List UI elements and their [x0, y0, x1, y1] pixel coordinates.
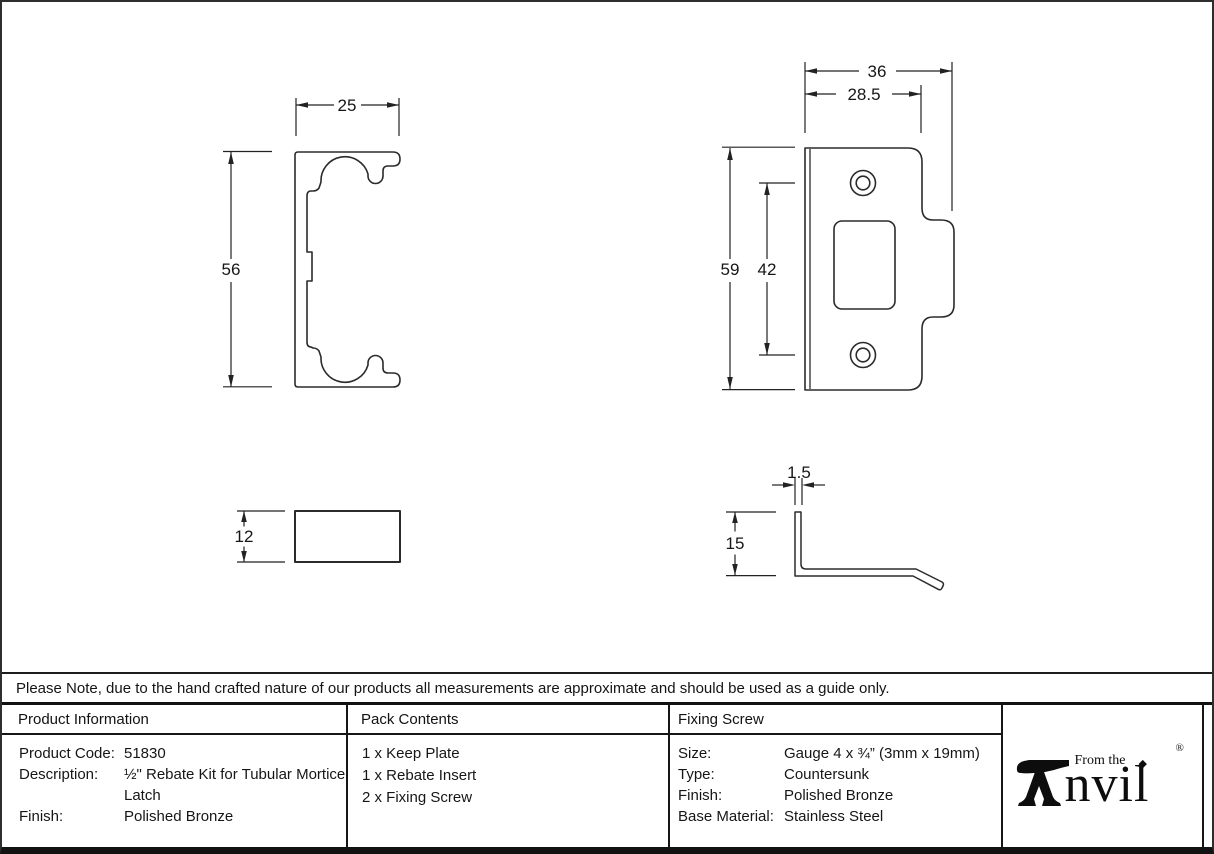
- column-header-fixing-screw: Fixing Screw: [678, 711, 764, 728]
- keep-plate-side-view: 1.5 15: [726, 463, 944, 590]
- rebate-insert-front-view: 25 56: [222, 96, 400, 387]
- screw-type-value: Countersunk: [784, 764, 869, 785]
- dim-label-keep-overall-width: 36: [868, 62, 887, 81]
- screw-material-value: Stainless Steel: [784, 806, 883, 827]
- keep-plate-front-view: 36 28.5 59: [721, 62, 954, 390]
- logo-wordmark-text: nvil: [1065, 759, 1150, 811]
- dim-keep-side-thickness: 1.5: [772, 463, 825, 505]
- dim-rebate-side-height: 12: [235, 511, 285, 562]
- dim-label-rebate-width: 25: [338, 96, 357, 115]
- pack-item-rebate-insert: 1 x Rebate Insert: [362, 765, 476, 786]
- screw-finish-label: Finish:: [678, 785, 722, 806]
- rebate-insert-side-view: 12: [235, 511, 400, 562]
- screw-hole-top: [851, 171, 876, 196]
- disclaimer-note-row: Please Note, due to the hand crafted nat…: [2, 672, 1212, 705]
- screw-hole-bottom-inner: [856, 348, 870, 362]
- table-divider-2: [668, 705, 670, 849]
- dim-label-keep-side-thickness: 1.5: [787, 463, 811, 482]
- screw-material-label: Base Material:: [678, 806, 774, 827]
- description-value: ½" Rebate Kit for Tubular Mortice Latch: [124, 764, 364, 806]
- dim-label-keep-overall-height: 59: [721, 260, 740, 279]
- registered-trademark-icon: ®: [1176, 742, 1184, 754]
- pack-item-fixing-screw: 2 x Fixing Screw: [362, 787, 472, 808]
- dim-keep-hole-spacing: 42: [758, 183, 795, 355]
- screw-size-label: Size:: [678, 743, 711, 764]
- screw-hole-bottom: [851, 343, 876, 368]
- finish-label: Finish:: [19, 806, 63, 827]
- dim-label-rebate-side-height: 12: [235, 527, 254, 546]
- from-the-anvil-logo: From the ◆ nvil ®: [1015, 745, 1191, 809]
- dim-keep-side-leg-height: 15: [726, 512, 776, 576]
- finish-value: Polished Bronze: [124, 806, 233, 827]
- screw-size-value: Gauge 4 x ¾” (3mm x 19mm): [784, 743, 980, 764]
- anvil-icon: [1015, 757, 1071, 807]
- dim-label-keep-hole-spacing: 42: [758, 260, 777, 279]
- dim-label-keep-plate-width: 28.5: [847, 85, 880, 104]
- datasheet-page: 25 56: [0, 0, 1214, 854]
- product-code-label: Product Code:: [19, 743, 115, 764]
- product-code-value: 51830: [124, 743, 166, 764]
- dim-rebate-width: 25: [296, 96, 399, 136]
- technical-drawing-canvas: 25 56: [2, 2, 1214, 674]
- column-header-product-information: Product Information: [18, 711, 149, 728]
- screw-finish-value: Polished Bronze: [784, 785, 893, 806]
- dim-keep-plate-width: 28.5: [805, 85, 921, 133]
- description-label: Description:: [19, 764, 98, 785]
- brand-logo-cell: From the ◆ nvil ®: [1003, 705, 1202, 849]
- table-header-underline: [2, 733, 1003, 735]
- column-header-pack-contents: Pack Contents: [361, 711, 459, 728]
- dim-rebate-height: 56: [222, 152, 272, 388]
- screw-hole-top-inner: [856, 176, 870, 190]
- table-divider-right: [1202, 705, 1204, 849]
- dim-label-keep-side-leg-height: 15: [726, 534, 745, 553]
- disclaimer-note-text: Please Note, due to the hand crafted nat…: [16, 680, 890, 697]
- pack-item-keep-plate: 1 x Keep Plate: [362, 743, 460, 764]
- dim-label-rebate-height: 56: [222, 260, 241, 279]
- screw-type-label: Type:: [678, 764, 715, 785]
- latch-cutout: [834, 221, 895, 309]
